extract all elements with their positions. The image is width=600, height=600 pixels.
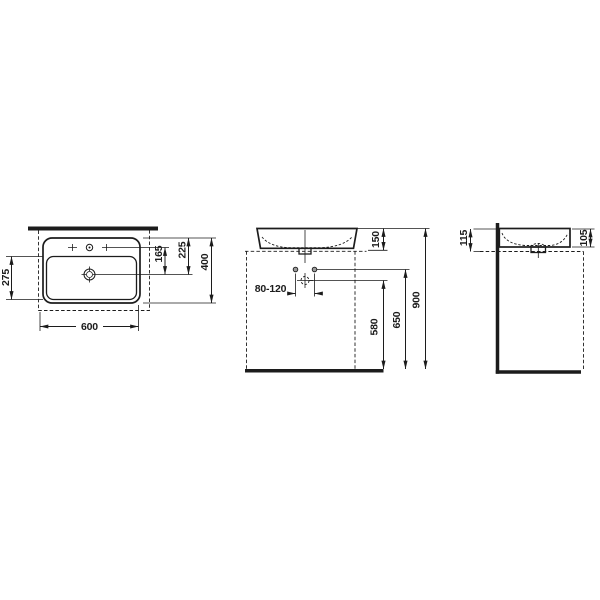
side-view: 115 105 <box>458 223 594 374</box>
dim-label-105: 105 <box>578 229 590 246</box>
dim-bowl-depth: 275 <box>0 257 43 300</box>
technical-drawing-page: 275 600 165 225 400 <box>0 0 600 600</box>
dim-rear-to-drain: 225 <box>177 238 189 275</box>
dim-label-115: 115 <box>458 229 470 246</box>
fixing-hole-left <box>293 267 298 272</box>
fixing-hole-right <box>312 267 317 272</box>
dim-label-580: 580 <box>369 318 381 335</box>
dim-tap-to-drain: 165 <box>153 245 165 274</box>
dim-rim-height: 900 <box>411 229 426 370</box>
dim-fixing-holes-height: 650 <box>391 270 405 370</box>
dim-label-150: 150 <box>370 231 382 248</box>
dim-basin-height: 150 <box>370 229 383 251</box>
dim-label-900: 900 <box>411 291 423 308</box>
dim-label-400: 400 <box>199 253 211 270</box>
dim-tap-spacing: 80-120 <box>255 274 322 297</box>
dim-drain-connection-height: 580 <box>369 281 384 370</box>
extension-lines <box>474 229 497 252</box>
basin-front-profile <box>257 229 357 249</box>
dim-depth: 400 <box>199 238 211 303</box>
washbasin-technical-drawing: 275 600 165 225 400 <box>0 0 600 600</box>
top-view: 275 600 165 225 400 <box>0 229 216 334</box>
dim-label-275: 275 <box>0 269 12 286</box>
dim-label-600: 600 <box>81 321 98 333</box>
dim-front-edge-height: 105 <box>572 229 595 247</box>
dim-label-80-120: 80-120 <box>255 283 287 295</box>
tap-hole-center <box>89 247 91 249</box>
front-view: 80-120 150 580 650 900 <box>245 229 430 371</box>
dim-width: 600 <box>40 305 139 333</box>
dim-wall-mount-height: 115 <box>458 229 496 252</box>
dim-label-225: 225 <box>177 241 189 258</box>
cabinet-dashed-sides <box>247 251 356 369</box>
dim-label-650: 650 <box>391 311 403 328</box>
dim-label-165: 165 <box>153 245 165 262</box>
